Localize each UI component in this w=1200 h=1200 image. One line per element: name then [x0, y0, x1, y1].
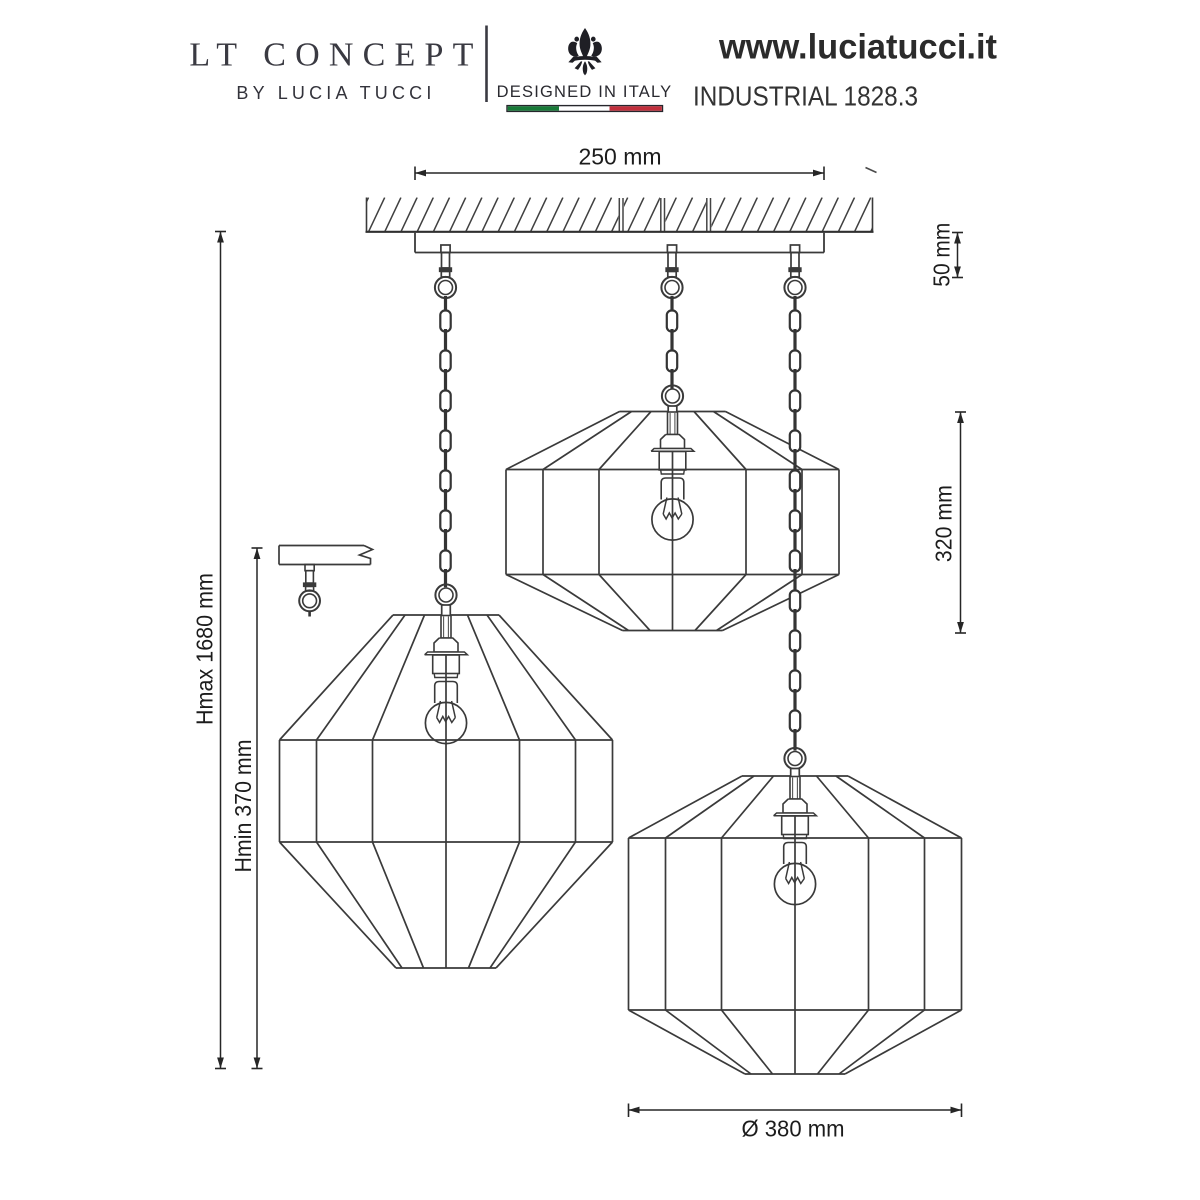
svg-text:50 mm: 50 mm [929, 223, 955, 287]
svg-text:Hmax 1680 mm: Hmax 1680 mm [192, 573, 218, 725]
svg-text:BY LUCIA TUCCI: BY LUCIA TUCCI [236, 83, 435, 103]
svg-text:Hmin 370 mm: Hmin 370 mm [230, 740, 256, 873]
svg-text:DESIGNED IN ITALY: DESIGNED IN ITALY [497, 83, 673, 101]
svg-text:LT CONCEPT: LT CONCEPT [189, 37, 482, 74]
svg-text:320 mm: 320 mm [931, 485, 957, 562]
svg-text:www.luciatucci.it: www.luciatucci.it [718, 28, 997, 67]
svg-text:INDUSTRIAL 1828.3: INDUSTRIAL 1828.3 [693, 81, 918, 112]
svg-text:250 mm: 250 mm [578, 144, 661, 170]
svg-text:Ø 380 mm: Ø 380 mm [742, 1116, 845, 1142]
